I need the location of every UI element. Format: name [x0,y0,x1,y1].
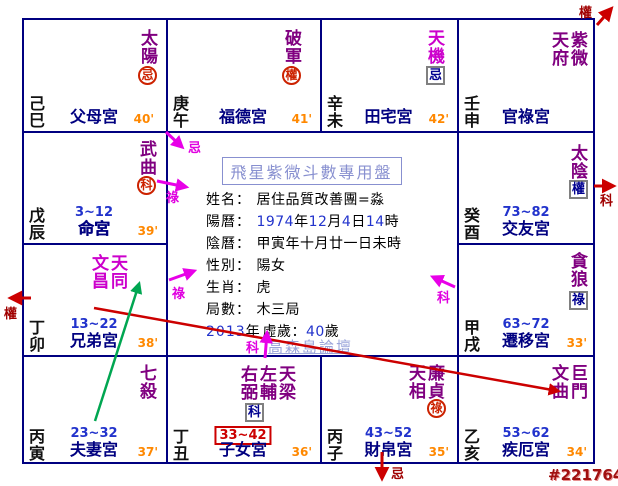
time-value: 39' [138,224,158,238]
field-value: 居住品質改善團=淼 [256,189,384,209]
time-value: 34' [567,445,587,459]
palace-name: 交友宮 [502,215,550,239]
star-names: 紫微天府 [548,31,586,71]
palace-name: 官祿宮 [502,103,550,127]
self-transform-ke-icon: 科 [245,403,264,422]
info-row-bureau: 局數： 木三局 [206,299,300,319]
palace-name: 父母宮 [70,103,118,127]
star-names: 太陰 [567,144,586,184]
palace-cell-wealth: 廉貞天相 祿 丙子 43~52 財帛宮 35' [320,355,457,464]
palace-cell-siblings: 天同文昌 丁卯 13~22 兄弟宮 38' [22,243,166,355]
stem-branch: 丁丑 [173,428,191,462]
stem-branch: 己巳 [29,95,47,129]
stem-branch: 辛未 [327,95,345,129]
stem-branch: 甲戌 [464,319,482,353]
arrow-label: 科 [600,193,613,209]
transform-mark-ji-icon: 忌 [138,66,157,85]
field-label: 2013年 [206,321,258,341]
field-label: 性別： [206,255,252,275]
time-value: 37' [138,445,158,459]
palace-name: 兄弟宮 [70,327,118,351]
palace-name: 命宮 [78,215,110,239]
stem-branch: 丁卯 [29,319,47,353]
palace-cell-travel: 貪狼 祿 甲戌 63~72 遷移宮 33' [457,243,595,355]
star-names: 天機 [424,29,443,69]
transform-mark-ke-icon: 科 [137,176,156,195]
field-label: 局數： [206,299,252,319]
stem-branch: 庚午 [173,95,191,129]
field-value: 虎 [256,277,271,297]
field-label: 姓名： [206,189,252,209]
chart-id-tag: #2217641 [548,466,618,484]
info-row-lunar-date: 陰曆： 甲寅年十月廿一日未時 [206,233,401,253]
stem-branch: 乙亥 [464,428,482,462]
red-arrow-quan-out-icon [597,9,611,25]
info-row-name: 姓名： 居住品質改善團=淼 [206,189,385,209]
star-names: 天梁左輔右弼 [237,365,294,405]
field-value: 陽女 [256,255,285,275]
time-value: 41' [292,112,312,126]
star-names: 七殺 [136,364,155,404]
palace-cell-fortune: 破軍 權 庚午 福德宮 41' [166,18,320,131]
stem-branch: 癸酉 [464,207,482,241]
stem-branch: 戊辰 [29,207,47,241]
palace-cell-friends: 太陰 權 癸酉 73~82 交友宮 [457,131,595,243]
transform-mark-quan-icon: 權 [282,66,301,85]
palace-name: 田宅宮 [364,103,412,127]
stem-branch: 壬申 [464,95,482,129]
self-transform-quan-icon: 權 [569,180,588,199]
time-value: 42' [429,112,449,126]
self-transform-ji-icon: 忌 [426,66,445,85]
star-names: 貪狼 [567,252,586,292]
star-names: 武曲 [136,140,155,180]
field-value: 木三局 [256,299,300,319]
transform-mark-lu-icon: 祿 [427,399,446,418]
palace-cell-parents: 太陽 忌 己巳 父母宮 40' [22,18,166,131]
palace-name: 疾厄宮 [502,436,550,460]
field-label: 陰曆： [206,233,252,253]
field-label: 陽曆： [206,211,252,231]
center-info-panel: 飛星紫微斗數專用盤 姓名： 居住品質改善團=淼 陽曆： 1974年12月4日14… [166,131,457,355]
palace-cell-property: 天機 忌 辛未 田宅宮 42' [320,18,457,131]
time-value: 36' [292,445,312,459]
palace-name: 福德宮 [219,103,267,127]
info-row-zodiac: 生肖： 虎 [206,277,271,297]
palace-cell-life: 武曲 科 戊辰 3~12 命宮 39' [22,131,166,243]
palace-name: 子女宮 [219,436,267,460]
time-value: 38' [138,336,158,350]
palace-cell-children: 天梁左輔右弼 科 丁丑 33~42 子女宮 36' [166,355,320,464]
palace-cell-career: 紫微天府 壬申 官祿宮 [457,18,595,131]
star-names: 天同文昌 [88,254,126,294]
time-value: 35' [429,445,449,459]
palace-name: 財帛宮 [364,436,412,460]
forum-watermark: 高森島論壇 [268,336,353,357]
ziwei-chart: 太陽 忌 己巳 父母宮 40' 破軍 權 庚午 福德宮 41' 天機 忌 辛未 … [0,0,618,486]
info-row-solar-date: 陽曆： 1974年12月4日14時 [206,211,399,231]
chart-title: 飛星紫微斗數專用盤 [221,157,401,185]
palace-name: 夫妻宮 [70,436,118,460]
time-value: 33' [567,336,587,350]
star-names: 太陽 [137,29,156,69]
palace-cell-health: 巨門文曲 乙亥 53~62 疾厄宮 34' [457,355,595,464]
time-value: 40' [134,112,154,126]
palace-cell-spouse: 七殺 丙寅 23~32 夫妻宮 37' [22,355,166,464]
arrow-label: 權 [4,306,17,322]
field-label: 生肖： [206,277,252,297]
field-value: 甲寅年十月廿一日未時 [256,233,401,253]
self-transform-lu-icon: 祿 [569,291,588,310]
star-names: 破軍 [281,29,300,69]
field-value: 1974年12月4日14時 [256,211,399,231]
info-row-gender: 性別： 陽女 [206,255,285,275]
star-names: 巨門文曲 [548,364,586,404]
star-names: 廉貞天相 [405,364,443,404]
stem-branch: 丙子 [327,428,345,462]
palace-name: 遷移宮 [502,327,550,351]
arrow-label: 忌 [391,467,404,482]
stem-branch: 丙寅 [29,428,47,462]
